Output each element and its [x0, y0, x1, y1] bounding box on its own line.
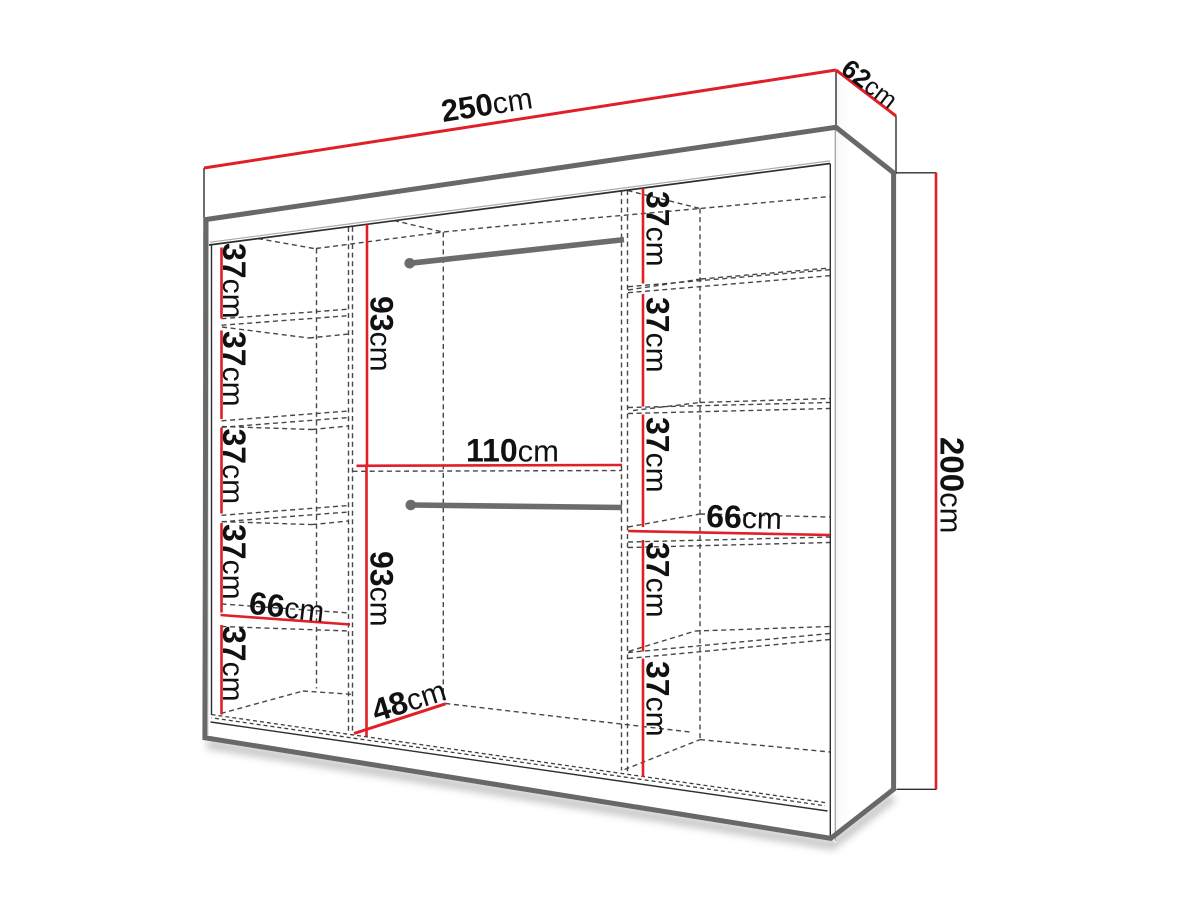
svg-text:37cm: 37cm [640, 297, 676, 373]
svg-text:110cm: 110cm [466, 433, 559, 469]
svg-text:37cm: 37cm [640, 417, 676, 493]
svg-text:93cm: 93cm [364, 551, 400, 627]
svg-text:37cm: 37cm [216, 524, 252, 600]
svg-text:66cm: 66cm [706, 498, 783, 536]
svg-text:37cm: 37cm [640, 661, 676, 737]
svg-text:37cm: 37cm [216, 626, 252, 702]
svg-text:37cm: 37cm [216, 429, 252, 505]
svg-text:93cm: 93cm [364, 296, 400, 372]
svg-text:37cm: 37cm [216, 331, 252, 407]
svg-text:37cm: 37cm [216, 243, 252, 319]
svg-text:200cm: 200cm [934, 437, 971, 533]
svg-text:37cm: 37cm [640, 191, 676, 267]
svg-text:37cm: 37cm [640, 542, 676, 618]
